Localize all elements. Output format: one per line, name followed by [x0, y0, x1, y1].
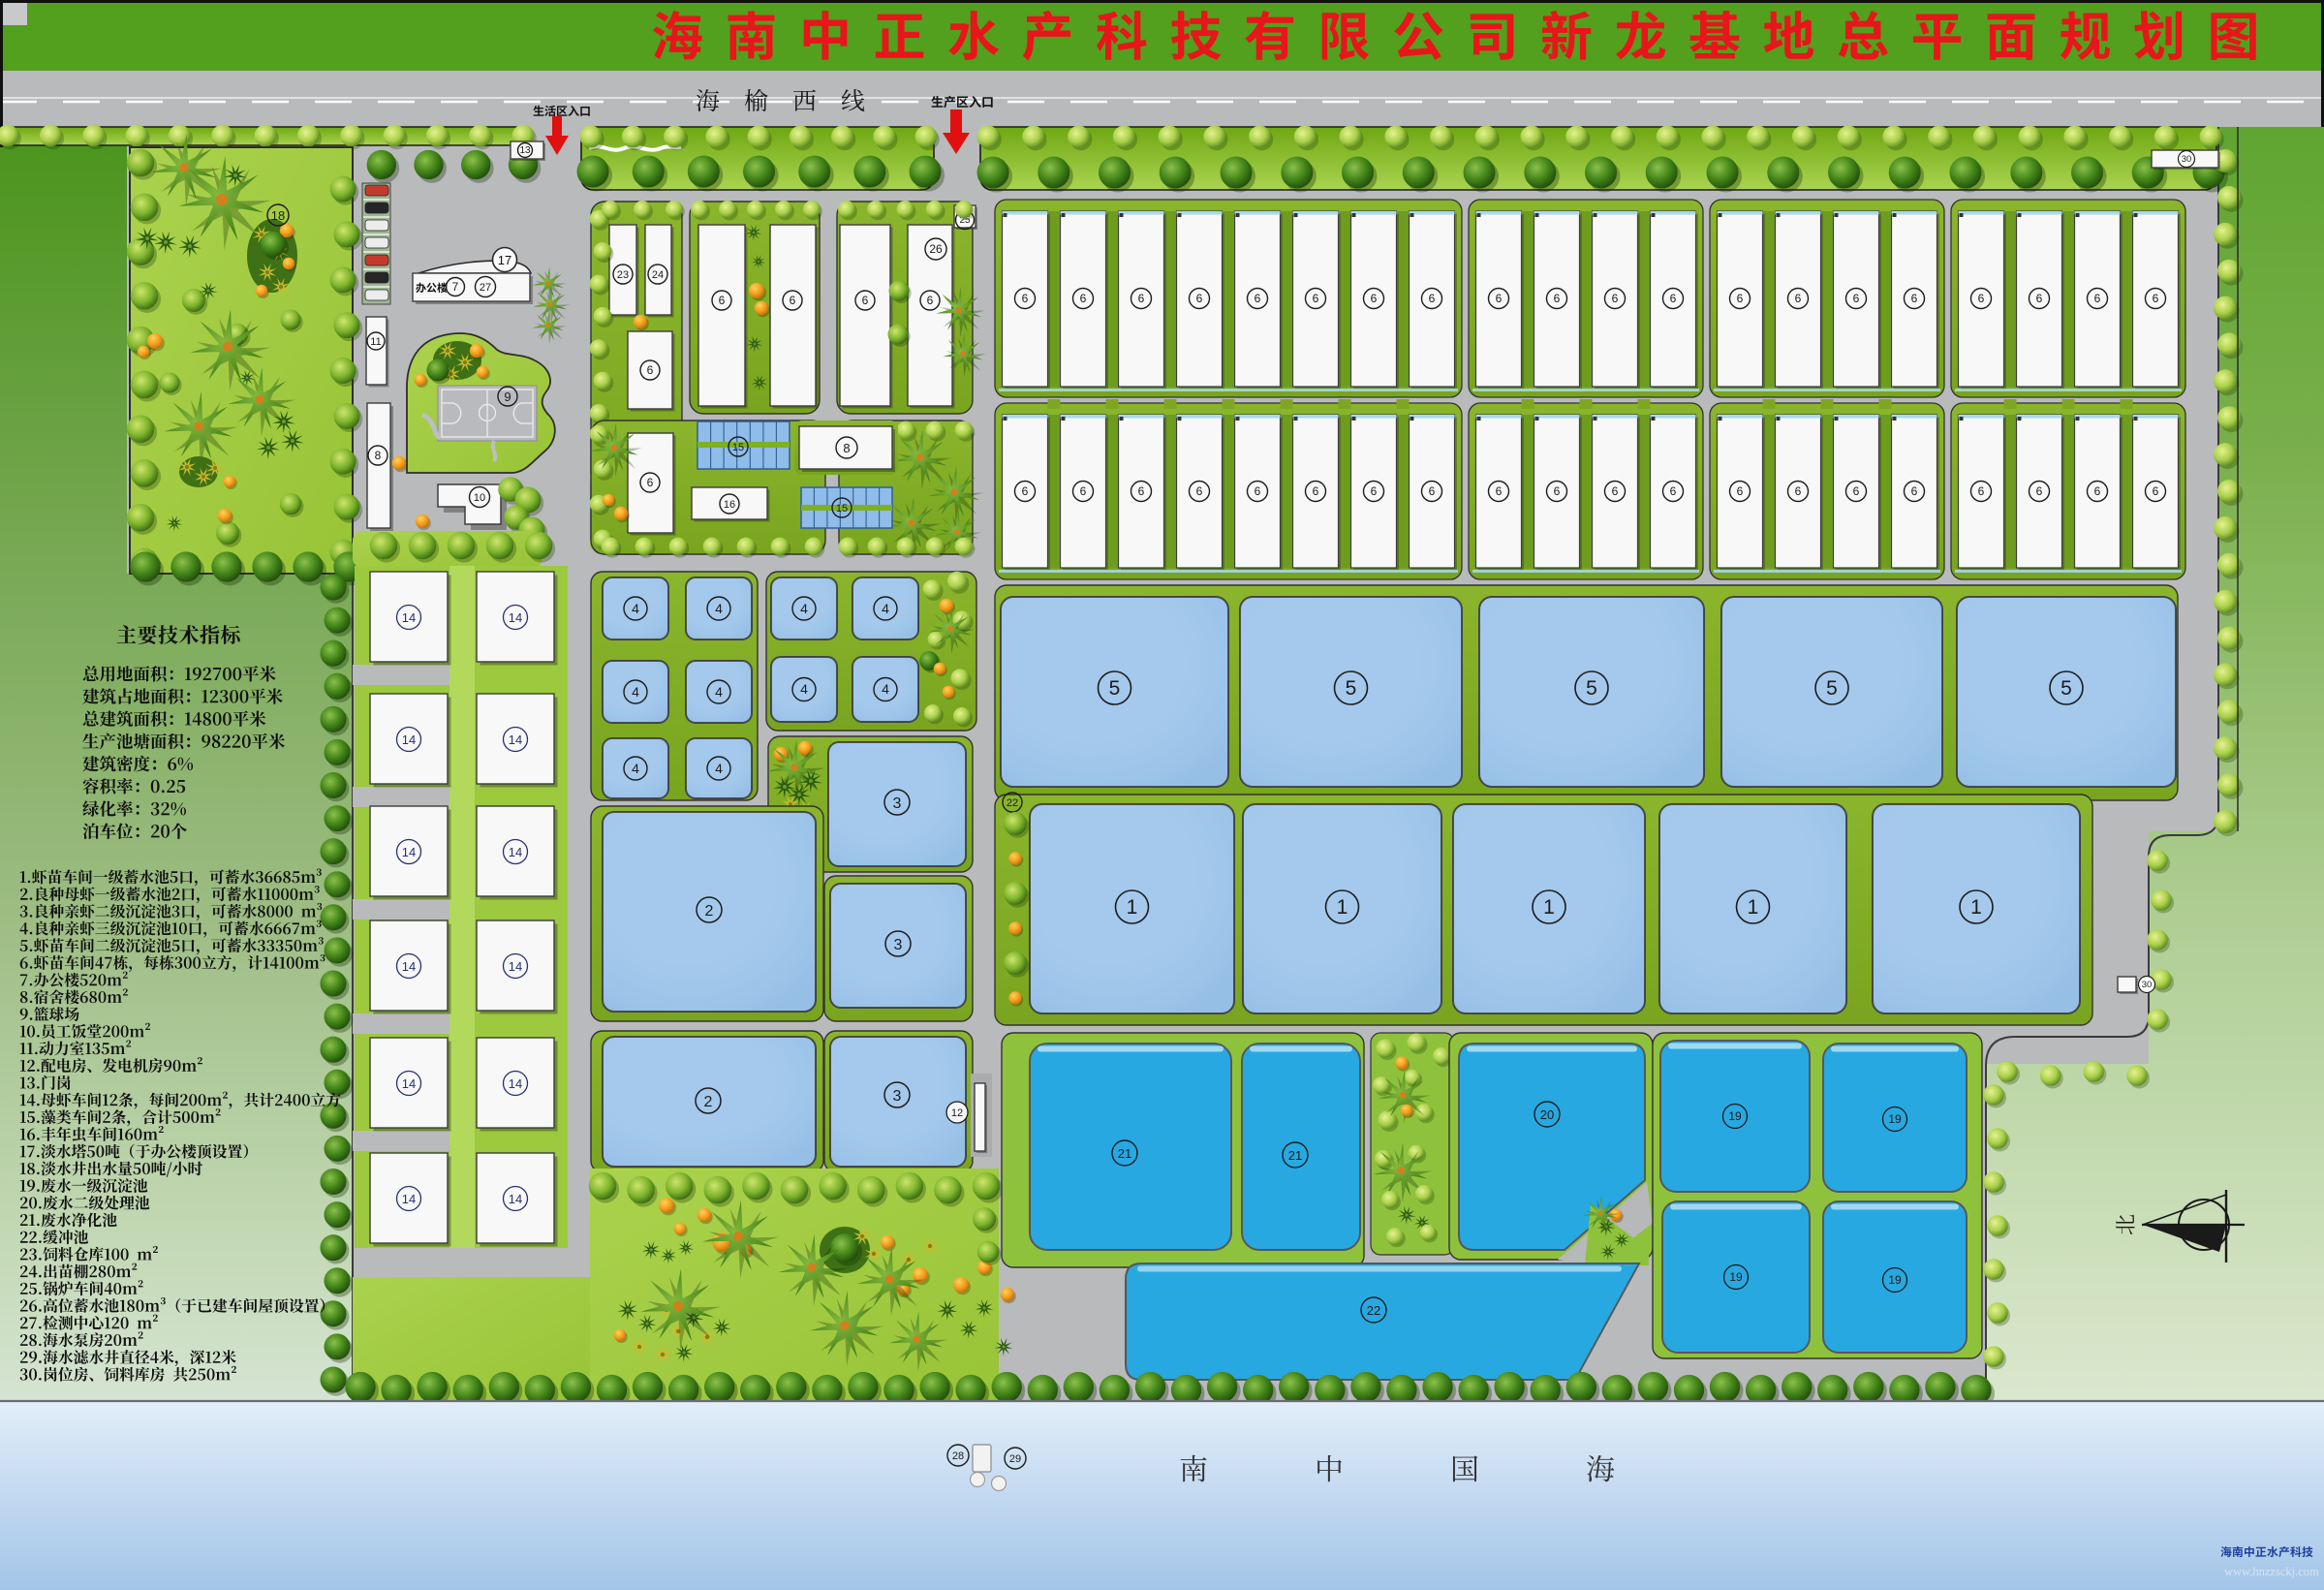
svg-text:6: 6 — [1911, 484, 1918, 498]
svg-text:29: 29 — [1009, 1453, 1021, 1465]
svg-text:1: 1 — [1748, 896, 1759, 919]
svg-text:6: 6 — [1313, 292, 1319, 305]
svg-text:6: 6 — [1496, 292, 1503, 305]
svg-text:4: 4 — [800, 681, 808, 697]
svg-text:6: 6 — [1080, 484, 1087, 498]
svg-text:6: 6 — [927, 294, 934, 307]
svg-text:6: 6 — [790, 294, 796, 307]
svg-text:6: 6 — [1737, 484, 1744, 498]
svg-text:14: 14 — [402, 1192, 416, 1206]
svg-text:4: 4 — [632, 684, 639, 700]
svg-text:24: 24 — [652, 269, 664, 281]
svg-text:16: 16 — [724, 499, 735, 511]
svg-text:1: 1 — [1543, 896, 1555, 919]
svg-text:22: 22 — [1007, 797, 1018, 809]
svg-text:26: 26 — [929, 242, 943, 256]
svg-text:4: 4 — [882, 681, 889, 697]
svg-text:15: 15 — [732, 442, 744, 453]
svg-text:14: 14 — [402, 845, 416, 859]
svg-text:14: 14 — [509, 610, 522, 625]
svg-text:14: 14 — [509, 1076, 522, 1091]
svg-text:30: 30 — [2142, 980, 2153, 990]
svg-text:6: 6 — [2153, 484, 2159, 498]
svg-text:21: 21 — [1288, 1148, 1302, 1163]
svg-text:14: 14 — [509, 959, 522, 974]
svg-text:1: 1 — [1970, 896, 1982, 919]
svg-text:6: 6 — [1670, 292, 1677, 305]
svg-text:6: 6 — [1196, 292, 1203, 305]
svg-text:6: 6 — [1853, 292, 1860, 305]
svg-text:4: 4 — [800, 601, 808, 616]
svg-text:14: 14 — [509, 733, 522, 747]
svg-text:6: 6 — [2036, 292, 2043, 305]
svg-text:6: 6 — [2036, 484, 2043, 498]
svg-text:1: 1 — [1127, 896, 1138, 919]
svg-text:23: 23 — [617, 269, 629, 281]
svg-text:5: 5 — [1346, 677, 1357, 700]
svg-text:6: 6 — [862, 294, 869, 307]
svg-text:14: 14 — [509, 845, 522, 859]
svg-text:6: 6 — [1138, 292, 1145, 305]
svg-text:www.hnzzsckj.com: www.hnzzsckj.com — [2224, 1565, 2319, 1578]
svg-text:3: 3 — [893, 795, 902, 812]
svg-text:2: 2 — [705, 903, 714, 920]
svg-text:4: 4 — [715, 601, 723, 616]
svg-text:15: 15 — [836, 503, 848, 514]
svg-text:6: 6 — [1737, 292, 1744, 305]
svg-text:6: 6 — [1978, 484, 1985, 498]
svg-text:6: 6 — [647, 363, 654, 377]
svg-text:6: 6 — [1313, 484, 1319, 498]
svg-text:4: 4 — [715, 684, 723, 700]
svg-text:6: 6 — [1496, 484, 1503, 498]
svg-text:6: 6 — [1911, 292, 1918, 305]
svg-text:4: 4 — [715, 761, 723, 776]
svg-text:7: 7 — [452, 280, 459, 294]
svg-text:28: 28 — [952, 1450, 964, 1462]
svg-text:6: 6 — [1612, 292, 1619, 305]
svg-text:10: 10 — [474, 492, 485, 504]
svg-text:4: 4 — [882, 601, 889, 616]
svg-text:19: 19 — [1728, 1109, 1742, 1123]
svg-text:2: 2 — [704, 1094, 713, 1110]
svg-text:30: 30 — [2182, 154, 2192, 165]
svg-text:6: 6 — [1429, 292, 1436, 305]
svg-text:5: 5 — [2061, 677, 2072, 700]
svg-text:6: 6 — [719, 294, 726, 307]
svg-text:14: 14 — [402, 1076, 416, 1091]
svg-text:3: 3 — [894, 937, 903, 953]
svg-text:6: 6 — [1554, 292, 1561, 305]
svg-text:6: 6 — [1022, 484, 1029, 498]
svg-text:6: 6 — [1138, 484, 1145, 498]
svg-text:8: 8 — [375, 449, 382, 462]
svg-text:5: 5 — [1586, 677, 1597, 700]
svg-text:9: 9 — [504, 390, 511, 404]
svg-text:6: 6 — [1371, 484, 1378, 498]
svg-text:6: 6 — [2153, 292, 2159, 305]
svg-text:6: 6 — [1612, 484, 1619, 498]
svg-text:6: 6 — [1255, 292, 1261, 305]
svg-text:6: 6 — [1371, 292, 1378, 305]
svg-text:6: 6 — [1080, 292, 1087, 305]
svg-text:21: 21 — [1118, 1146, 1131, 1161]
svg-text:18: 18 — [271, 208, 285, 223]
svg-text:6: 6 — [647, 476, 654, 489]
svg-text:12: 12 — [951, 1107, 963, 1119]
svg-text:6: 6 — [2094, 292, 2101, 305]
svg-text:14: 14 — [509, 1192, 522, 1206]
svg-text:6: 6 — [1022, 292, 1029, 305]
svg-text:6: 6 — [1795, 484, 1802, 498]
svg-text:13: 13 — [519, 145, 531, 156]
svg-text:6: 6 — [1670, 484, 1677, 498]
svg-text:5: 5 — [1109, 677, 1121, 700]
svg-text:6: 6 — [1978, 292, 1985, 305]
svg-text:14: 14 — [402, 733, 416, 747]
svg-text:3: 3 — [893, 1088, 902, 1105]
svg-text:19: 19 — [1729, 1270, 1743, 1284]
svg-text:22: 22 — [1367, 1303, 1380, 1318]
svg-text:19: 19 — [1888, 1112, 1902, 1126]
svg-text:6: 6 — [2094, 484, 2101, 498]
svg-text:6: 6 — [1196, 484, 1203, 498]
svg-text:8: 8 — [843, 441, 850, 455]
svg-text:17: 17 — [498, 253, 511, 267]
svg-text:6: 6 — [1853, 484, 1860, 498]
svg-text:14: 14 — [402, 959, 416, 974]
svg-text:19: 19 — [1888, 1273, 1902, 1287]
svg-text:4: 4 — [632, 601, 639, 616]
svg-text:5: 5 — [1826, 677, 1838, 700]
svg-text:20: 20 — [1540, 1107, 1554, 1122]
svg-text:11: 11 — [370, 336, 381, 348]
svg-text:6: 6 — [1554, 484, 1561, 498]
svg-text:6: 6 — [1255, 484, 1261, 498]
svg-text:1: 1 — [1337, 896, 1348, 919]
svg-text:6: 6 — [1429, 484, 1436, 498]
svg-text:4: 4 — [632, 761, 639, 776]
svg-text:14: 14 — [402, 610, 416, 625]
svg-text:6: 6 — [1795, 292, 1802, 305]
svg-text:27: 27 — [480, 282, 491, 294]
